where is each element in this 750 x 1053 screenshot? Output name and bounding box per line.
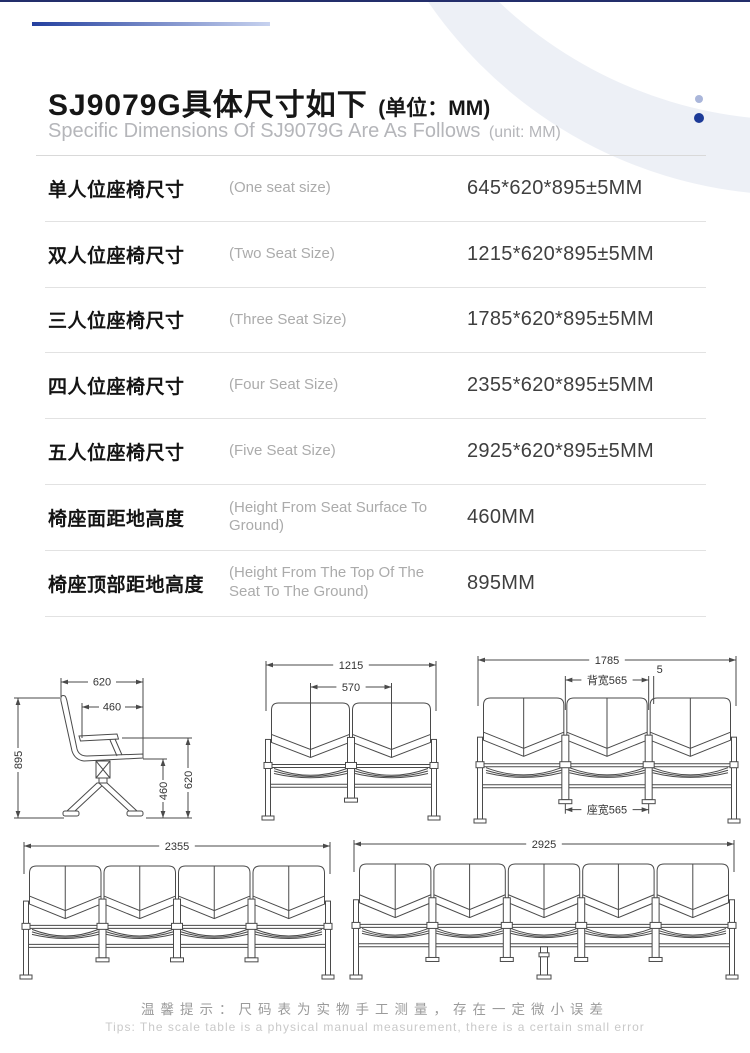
row-label-cn: 四人位座椅尺寸	[45, 372, 229, 399]
table-row: 三人位座椅尺寸 (Three Seat Size) 1785*620*895±5…	[45, 288, 706, 354]
row-label-en: (Three Seat Size)	[229, 311, 467, 330]
top-border-line	[0, 0, 750, 2]
tip-text-cn: 温馨提示：尺码表为实物手工测量，存在一定微小误差	[0, 998, 750, 1018]
svg-text:背宽565: 背宽565	[587, 673, 627, 687]
diagram-five-seat-front-view: 2925	[344, 834, 744, 986]
svg-text:座宽565: 座宽565	[587, 802, 627, 816]
page-subtitle-en: Specific Dimensions Of SJ9079G Are As Fo…	[48, 120, 480, 142]
page-title-cn: SJ9079G具体尺寸如下	[48, 89, 368, 122]
svg-text:2925: 2925	[532, 839, 556, 851]
diagram-three-seat-front-view: 1785背宽5655座宽565	[468, 650, 746, 830]
row-value: 1215*620*895±5MM	[467, 243, 654, 266]
svg-text:2355: 2355	[165, 841, 189, 853]
row-label-en: (Height From Seat Surface To Ground)	[229, 499, 467, 537]
dim-label-side-height-arm: 620	[183, 771, 195, 789]
row-label-en: (Four Seat Size)	[229, 376, 467, 395]
dim-label-side-height-seat: 460	[158, 782, 170, 800]
table-row: 四人位座椅尺寸 (Four Seat Size) 2355*620*895±5M…	[45, 353, 706, 419]
row-label-en: (Two Seat Size)	[229, 245, 467, 264]
table-row: 椅座顶部距地高度 (Height From The Top Of The Sea…	[45, 551, 706, 617]
svg-text:570: 570	[342, 682, 360, 694]
diagram-two-seat-front-view: 1215570	[256, 655, 446, 827]
page-subtitle-unit: (unit: MM)	[489, 124, 561, 141]
row-value: 645*620*895±5MM	[467, 177, 643, 200]
row-label-cn: 五人位座椅尺寸	[45, 438, 229, 465]
page-title: SJ9079G具体尺寸如下 (单位：MM)	[48, 80, 490, 124]
row-label-cn: 单人位座椅尺寸	[45, 175, 229, 202]
diagram-four-seat-front-view: 2355	[14, 836, 340, 986]
row-label-en: (Height From The Top Of The Seat To The …	[229, 564, 467, 602]
table-row: 单人位座椅尺寸 (One seat size) 645*620*895±5MM	[45, 156, 706, 222]
decorative-dot-light	[695, 95, 703, 103]
row-label-cn: 椅座面距地高度	[45, 504, 229, 531]
table-row: 五人位座椅尺寸 (Five Seat Size) 2925*620*895±5M…	[45, 419, 706, 485]
table-row: 双人位座椅尺寸 (Two Seat Size) 1215*620*895±5MM	[45, 222, 706, 288]
row-value: 895MM	[467, 572, 535, 595]
row-value: 2355*620*895±5MM	[467, 374, 654, 397]
row-value: 1785*620*895±5MM	[467, 308, 654, 331]
dim-label-side-height-total: 895	[13, 751, 25, 769]
page-title-unit: (单位：MM)	[378, 97, 490, 120]
row-label-en: (Five Seat Size)	[229, 442, 467, 461]
row-value: 460MM	[467, 506, 535, 529]
row-label-cn: 双人位座椅尺寸	[45, 241, 229, 268]
svg-text:1215: 1215	[339, 660, 363, 672]
spec-table: 单人位座椅尺寸 (One seat size) 645*620*895±5MM …	[45, 156, 706, 617]
page-subtitle: Specific Dimensions Of SJ9079G Are As Fo…	[48, 120, 561, 143]
row-value: 2925*620*895±5MM	[467, 440, 654, 463]
accent-gradient-line	[32, 22, 270, 26]
row-label-cn: 三人位座椅尺寸	[45, 306, 229, 333]
table-row: 椅座面距地高度 (Height From Seat Surface To Gro…	[45, 485, 706, 551]
tip-text-en: Tips: The scale table is a physical manu…	[0, 1020, 750, 1034]
decorative-dot-dark	[694, 113, 704, 123]
dim-label-side-width-top: 620	[93, 677, 111, 689]
row-label-en: (One seat size)	[229, 179, 467, 198]
svg-text:5: 5	[657, 664, 663, 676]
row-label-cn: 椅座顶部距地高度	[45, 570, 229, 597]
dim-label-side-width-inner: 460	[103, 702, 121, 714]
spec-sheet-page: SJ9079G具体尺寸如下 (单位：MM) Specific Dimension…	[0, 0, 750, 1053]
diagram-one-seat-side-view: 620 460 895 620 460	[2, 652, 242, 834]
svg-text:1785: 1785	[595, 655, 619, 667]
